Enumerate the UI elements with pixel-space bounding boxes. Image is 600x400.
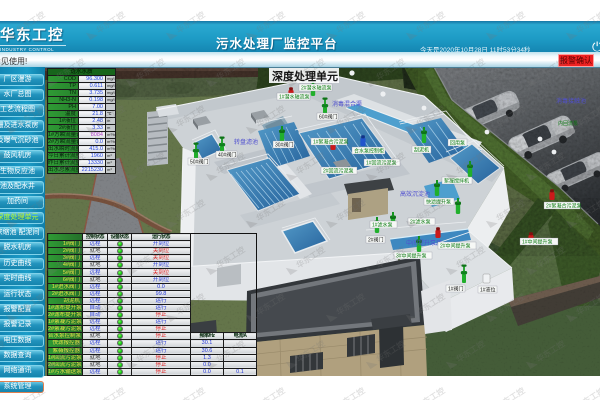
svg-text:◣ 华东工控: ◣ 华东工控 bbox=[565, 385, 600, 400]
svg-text:◣ 华东工控: ◣ 华东工控 bbox=[325, 385, 367, 400]
svg-text:高效沉淀池: 高效沉淀池 bbox=[400, 190, 430, 198]
svg-text:2#潜水轴流泵: 2#潜水轴流泵 bbox=[301, 85, 332, 92]
svg-text:2#回流污泥泵: 2#回流污泥泵 bbox=[323, 168, 354, 175]
svg-text:深度处理单元: 深度处理单元 bbox=[272, 69, 338, 83]
svg-text:刮泥机: 刮泥机 bbox=[414, 147, 429, 154]
svg-text:1#液位: 1#液位 bbox=[480, 287, 496, 294]
svg-text:消毒混合渠: 消毒混合渠 bbox=[332, 100, 362, 108]
svg-text:合水泵控制柜: 合水泵控制柜 bbox=[354, 148, 384, 155]
svg-text:◣ 华东工控: ◣ 华东工控 bbox=[245, 385, 287, 400]
svg-text:2#阀门: 2#阀门 bbox=[368, 237, 384, 244]
svg-text:1#潜水轴流泵: 1#潜水轴流泵 bbox=[279, 94, 310, 101]
svg-text:1#絮凝合污泥泵: 1#絮凝合污泥泵 bbox=[313, 139, 349, 146]
svg-text:◣ 华东工控: ◣ 华东工控 bbox=[165, 385, 207, 400]
svg-text:2#滤水泵: 2#滤水泵 bbox=[410, 219, 431, 226]
svg-text:1#回流污泥泵: 1#回流污泥泵 bbox=[366, 160, 397, 167]
svg-text:1#中间提升泵: 1#中间提升泵 bbox=[522, 239, 553, 246]
svg-text:2#中间提升泵: 2#中间提升泵 bbox=[440, 243, 471, 250]
svg-text:60#阀门: 60#阀门 bbox=[319, 114, 337, 121]
svg-text:快滤提升泵: 快滤提升泵 bbox=[426, 199, 451, 206]
svg-text:50#阀门: 50#阀门 bbox=[190, 159, 208, 166]
svg-text:30#阀门: 30#阀门 bbox=[275, 142, 293, 149]
svg-text:2#絮凝合污泥泵: 2#絮凝合污泥泵 bbox=[546, 203, 582, 210]
svg-text:◣ 华东工控: ◣ 华东工控 bbox=[405, 385, 447, 400]
svg-text:◣ 华东工控: ◣ 华东工控 bbox=[485, 385, 527, 400]
svg-text:回用泵: 回用泵 bbox=[450, 141, 465, 147]
svg-text:内回流泵: 内回流泵 bbox=[558, 120, 578, 127]
svg-text:中间提升泵房: 中间提升泵房 bbox=[406, 239, 442, 247]
svg-text:40#阀门: 40#阀门 bbox=[218, 152, 236, 159]
svg-text:◣ 华东工控: ◣ 华东工控 bbox=[85, 385, 127, 400]
svg-text:絮凝搅拌机: 絮凝搅拌机 bbox=[444, 178, 469, 185]
svg-text:转盘滤池: 转盘滤池 bbox=[234, 138, 258, 146]
svg-text:1#滤水泵: 1#滤水泵 bbox=[372, 222, 393, 229]
svg-text:1#阀门: 1#阀门 bbox=[448, 286, 464, 293]
svg-text:消毒接触池: 消毒接触池 bbox=[556, 97, 586, 105]
svg-text:3#中间提升泵: 3#中间提升泵 bbox=[396, 253, 427, 260]
